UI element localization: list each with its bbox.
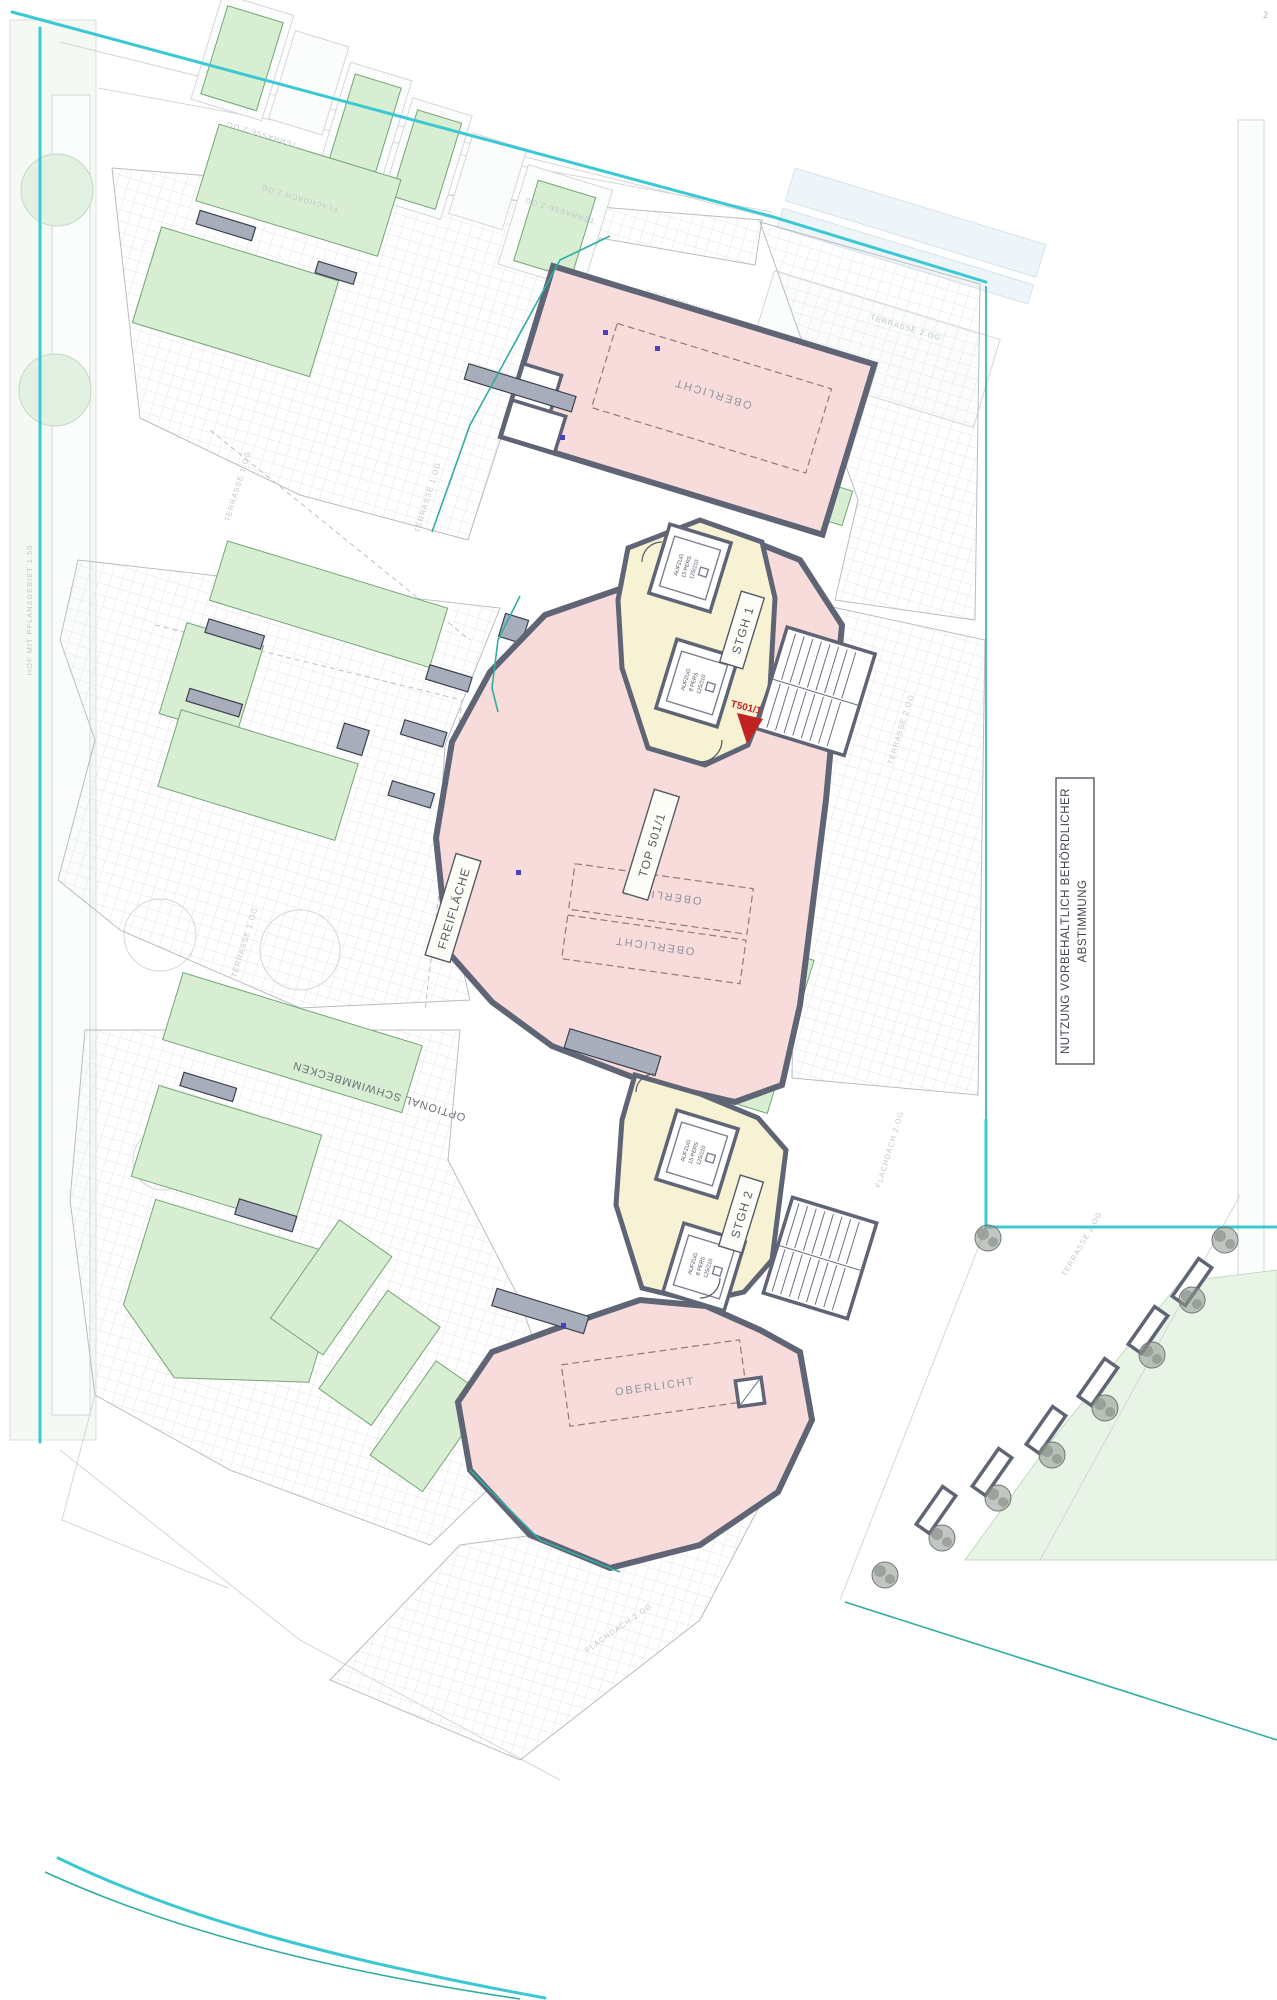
tree-icon [929,1525,955,1551]
marker-icon [603,330,608,335]
corner-mark: 2 [1263,10,1268,20]
boundary-bottom [58,1858,545,1998]
boundary-right [986,1120,1277,1227]
tree-icon [1092,1395,1118,1421]
terrace-label: TERRASSE 2.OG [1060,1210,1105,1278]
tree-icon [1039,1442,1065,1468]
tree-icon [985,1485,1011,1511]
stair-core-2: AUFZUG 15 PERS 125/210 AUFZUG 8 PERS 125… [616,1074,877,1319]
tree-icon [872,1562,898,1588]
tree-icon [975,1225,1001,1251]
tree-circle-icon [19,354,91,426]
marker-icon [516,870,521,875]
note-line-1: NUTZUNG VORBEHALTLICH BEHÖRDLICHER [1060,788,1072,1054]
courtyard-label: HOF MIT PFLANZGEBIET 1:50 [25,545,34,676]
tree-icon [1212,1227,1238,1253]
flat-roof-label: FLACHDACH 2.OG [874,1110,906,1189]
note-line-2: ABSTIMMUNG [1077,880,1089,963]
tree-icon [1139,1342,1165,1368]
marker-icon [655,346,660,351]
tree-icon [1179,1287,1205,1313]
street-green-area [965,1270,1277,1560]
approval-note: NUTZUNG VORBEHALTLICH BEHÖRDLICHER ABSTI… [1056,778,1094,1064]
tree-circle-icon [21,154,93,226]
stair-core-1: AUFZUG 15 PERS 125/210 AUFZUG 8 PERS 125… [618,520,875,765]
marker-icon [561,1323,566,1328]
stair-flight-2 [763,1197,876,1318]
floor-plan-drawing: TERRASSE 2.OG FLACHDACH 2.OG TERRASSE 2.… [0,0,1277,2000]
marker-icon [560,435,565,440]
roof-hatch [735,1377,764,1406]
floor-plan-canvas: TERRASSE 2.OG FLACHDACH 2.OG TERRASSE 2.… [0,0,1277,2000]
